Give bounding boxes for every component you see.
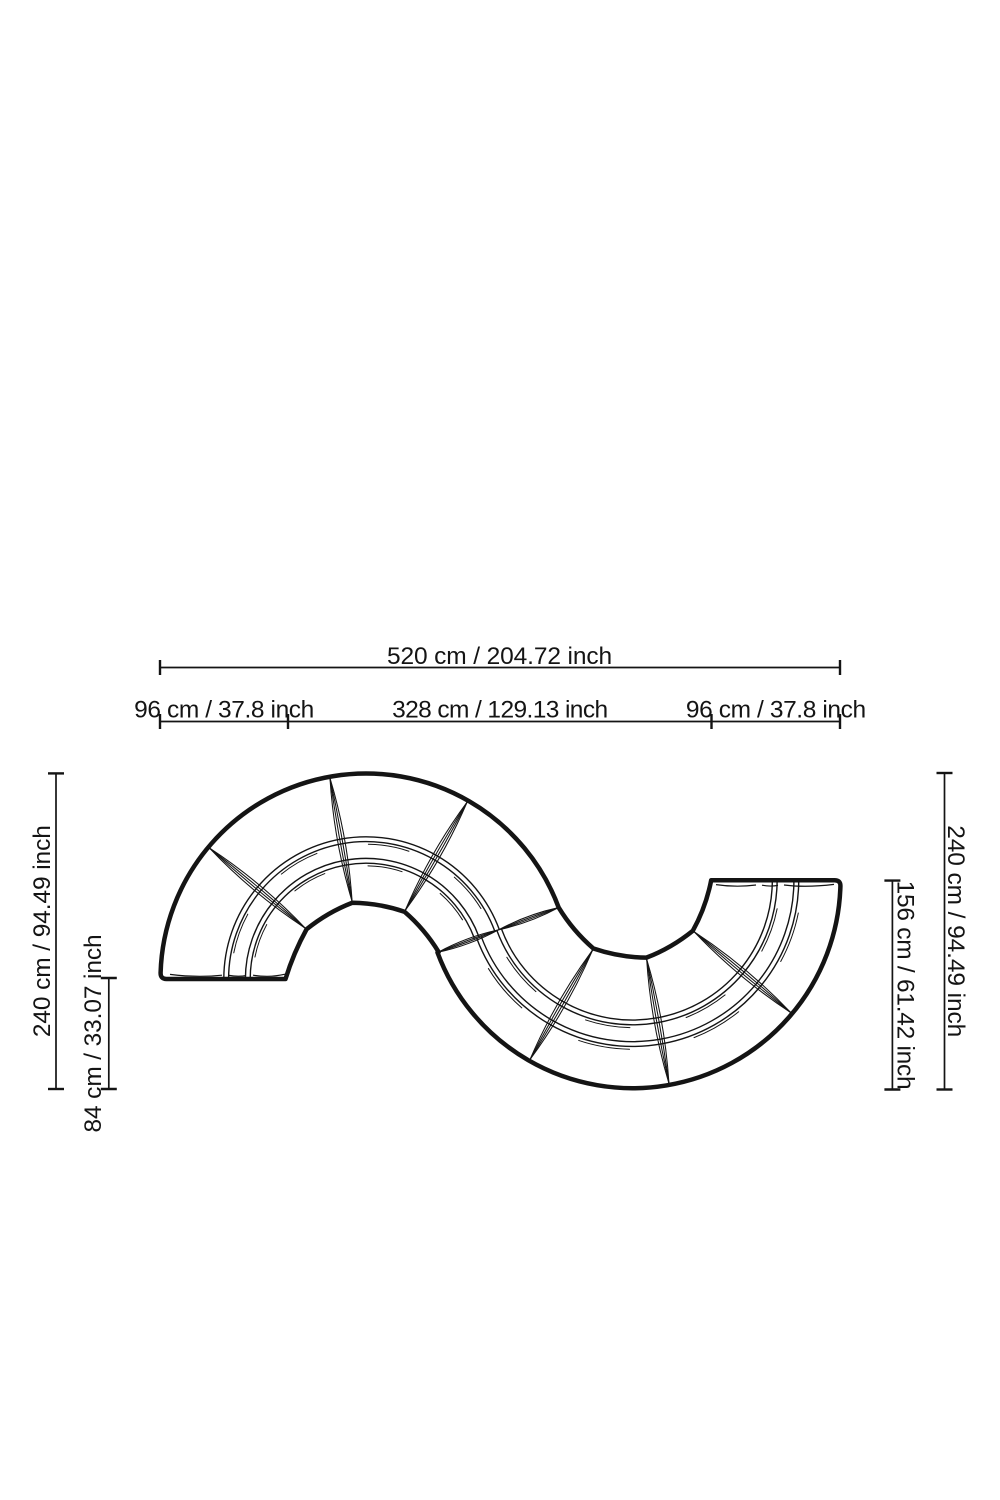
svg-text:240 cm / 94.49 inch: 240 cm / 94.49 inch bbox=[29, 825, 56, 1037]
svg-text:240 cm / 94.49 inch: 240 cm / 94.49 inch bbox=[942, 825, 969, 1037]
svg-text:156 cm / 61.42 inch: 156 cm / 61.42 inch bbox=[892, 881, 919, 1090]
svg-text:328 cm / 129.13 inch: 328 cm / 129.13 inch bbox=[392, 697, 607, 724]
svg-text:84 cm / 33.07 inch: 84 cm / 33.07 inch bbox=[80, 934, 107, 1132]
svg-text:96 cm / 37.8 inch: 96 cm / 37.8 inch bbox=[134, 697, 314, 724]
svg-text:96 cm / 37.8 inch: 96 cm / 37.8 inch bbox=[686, 697, 866, 724]
svg-text:520 cm / 204.72 inch: 520 cm / 204.72 inch bbox=[387, 643, 612, 670]
